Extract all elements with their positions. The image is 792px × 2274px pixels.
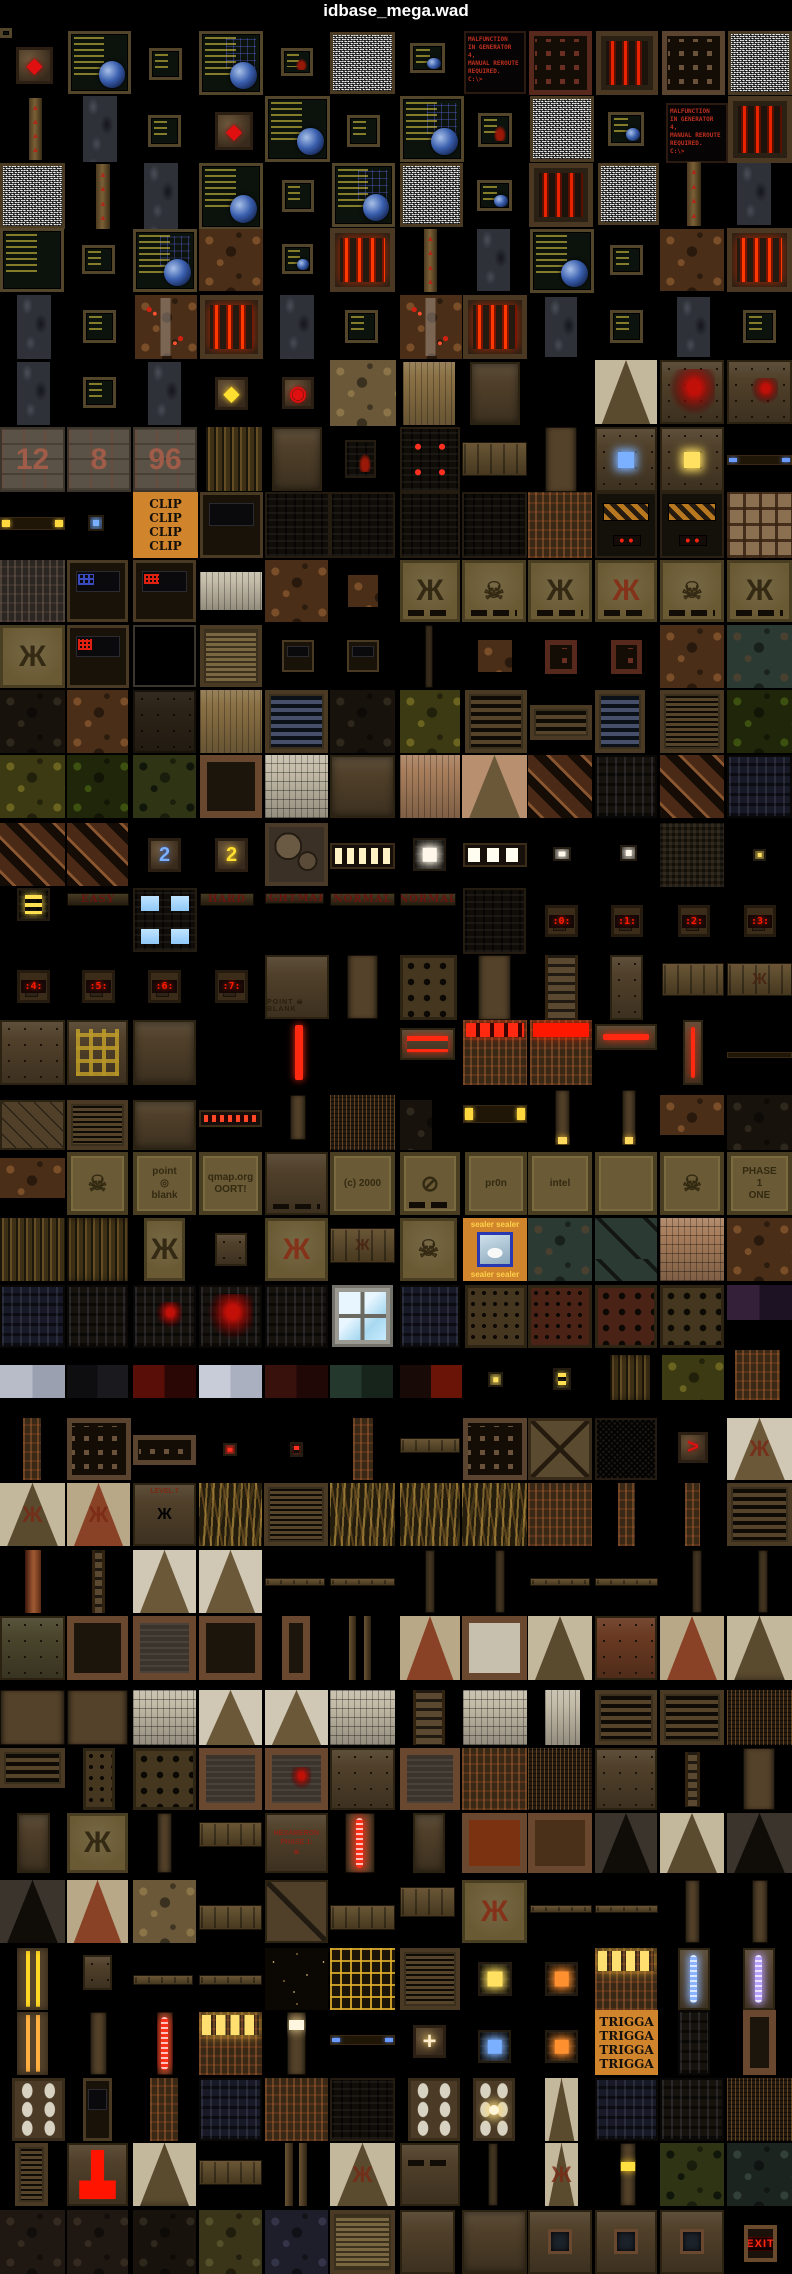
texture-tile: ▲▲▲▲ — [687, 162, 701, 226]
texture-tile — [477, 229, 510, 291]
texture-tile — [753, 849, 766, 861]
texture-tile — [330, 492, 395, 558]
texture-tile — [727, 2078, 792, 2141]
difficulty-normal: NORMAL — [400, 893, 456, 906]
texture-tile — [264, 1483, 328, 1546]
texture-tile: Ж — [727, 560, 792, 622]
texture-tile — [478, 113, 512, 147]
texture-tile — [135, 295, 197, 359]
texture-tile — [530, 705, 592, 740]
texture-tile — [463, 888, 526, 954]
texture-tile — [611, 640, 642, 674]
texture-tile — [199, 1748, 262, 1810]
texture-tile — [545, 640, 577, 674]
texture-tile: ⊘ — [400, 1152, 460, 1215]
texture-tile: Ж — [545, 2143, 578, 2206]
texture-tile: ▲▲▲▲ — [29, 98, 42, 160]
texture-tile — [347, 955, 378, 1019]
texture-tile — [596, 31, 658, 95]
texture-tile: :4: — [17, 970, 50, 1003]
texture-tile — [133, 690, 196, 753]
texture-tile — [67, 823, 128, 886]
texture-tile — [478, 640, 512, 672]
texture-tile — [470, 362, 520, 425]
texture-tile — [67, 1418, 131, 1480]
texture-tile — [0, 1616, 65, 1680]
texture-tile — [425, 1550, 435, 1613]
texture-tile — [413, 838, 446, 871]
texture-tile: ☠ — [462, 560, 526, 622]
texture-tile — [157, 1813, 172, 1873]
texture-tile — [400, 1438, 460, 1453]
texture-tile — [595, 1690, 657, 1745]
texture-tile — [199, 1905, 262, 1930]
texture-tile — [463, 1418, 527, 1480]
texture-tile — [400, 955, 457, 1020]
texture-tile — [133, 1100, 196, 1150]
texture-tile — [17, 1948, 48, 2010]
texture-tile — [265, 690, 328, 753]
texture-tile — [265, 1948, 328, 2010]
texture-tile — [478, 955, 511, 1020]
texture-tile — [727, 690, 792, 753]
texture-tile — [67, 1880, 128, 1943]
texture-tile — [345, 440, 376, 478]
texture-tile — [400, 1100, 432, 1150]
texture-tile — [622, 1090, 636, 1145]
texture-tile — [685, 1752, 700, 1807]
texture-tile — [282, 244, 313, 274]
tile-glyph-icon: Ж — [403, 563, 457, 619]
texture-tile — [0, 1690, 65, 1745]
texture-tile — [462, 1616, 527, 1680]
texture-tile — [330, 1095, 395, 1150]
texture-tile — [528, 492, 592, 558]
texture-tile: ▲▲▲▲ — [424, 229, 437, 292]
texture-tile: Ж — [595, 560, 657, 622]
texture-tile — [413, 1813, 445, 1873]
difficulty-nightmare: NIGHTMARE — [265, 893, 324, 904]
texture-tile — [265, 492, 330, 558]
texture-tile — [68, 31, 131, 94]
texture-tile — [400, 2210, 455, 2274]
texture-tile: 2 — [148, 838, 181, 872]
texture-tile — [348, 575, 378, 607]
texture-tile — [727, 1483, 792, 1546]
texture-tile: Ж — [330, 1228, 395, 1263]
texture-tile — [400, 1028, 455, 1060]
texture-tile — [199, 1550, 262, 1613]
texture-tile — [82, 245, 115, 274]
copyright-sign: (c) 2000 — [330, 1152, 395, 1215]
texture-tile — [0, 228, 64, 292]
texture-tile — [595, 1152, 657, 1215]
texture-tile: Ж — [67, 1483, 130, 1546]
texture-tile — [83, 1748, 115, 1810]
texture-tile: Ж — [265, 1218, 328, 1281]
texture-tile: ◆ — [215, 377, 248, 410]
texture-tile — [660, 1218, 724, 1281]
texture-tile — [199, 31, 263, 95]
texture-tile — [473, 2078, 515, 2141]
skull-sign: ☠ — [67, 1152, 128, 1215]
texture-tile — [148, 115, 181, 147]
texture-tile — [660, 1690, 724, 1745]
texture-tile — [199, 2160, 262, 2185]
texture-tile — [528, 1218, 592, 1281]
texture-tile — [265, 1748, 328, 1810]
texture-tile — [595, 1905, 658, 1913]
texture-tile — [206, 427, 262, 491]
texture-tile — [345, 1616, 375, 1680]
texture-tile — [287, 2012, 306, 2075]
texture-tile — [400, 690, 460, 753]
texture-tile — [199, 2210, 262, 2274]
texture-tile — [67, 1100, 128, 1150]
texture-tile — [545, 2078, 578, 2141]
texture-tile — [727, 1690, 792, 1745]
texture-tile — [752, 1880, 768, 1943]
texture-tile — [403, 362, 455, 425]
texture-tile — [17, 2012, 48, 2075]
texture-tile — [618, 1483, 635, 1546]
texture-tile — [83, 1955, 112, 1990]
texture-tile — [410, 43, 445, 73]
tile-glyph-icon: ◆ — [218, 380, 245, 407]
texture-tile — [17, 1813, 50, 1873]
texture-tile — [660, 492, 724, 558]
texture-tile — [345, 310, 378, 343]
phase-one-sign: PHASE1ONE — [727, 1152, 792, 1215]
texture-tile — [0, 1285, 65, 1348]
texture-tile — [735, 1350, 780, 1400]
texture-tile: ▲▲▲▲ — [96, 164, 110, 229]
texture-tile — [265, 1880, 328, 1943]
texture-tile — [595, 360, 657, 424]
texture-tile: Ж — [462, 1880, 527, 1943]
texture-tile — [660, 2078, 724, 2141]
texture-tile — [465, 1285, 527, 1348]
texture-tile — [282, 180, 314, 212]
texture-tile — [685, 1880, 700, 1943]
texture-tile — [400, 163, 463, 227]
texture-tile — [727, 1616, 792, 1680]
texture-tile — [727, 625, 792, 688]
texture-tile — [545, 1962, 578, 1996]
texture-tile — [150, 2078, 178, 2141]
texture-tile — [595, 1616, 657, 1680]
texture-tile — [478, 2030, 511, 2063]
texture-tile — [133, 229, 197, 292]
texture-tile: :2: — [678, 905, 710, 937]
texture-tile — [83, 310, 116, 343]
tile-glyph-icon: > — [681, 1435, 705, 1460]
texture-tile — [0, 1748, 65, 1788]
texture-tile — [660, 229, 724, 291]
texture-tile — [88, 515, 104, 531]
texture-tile — [463, 843, 527, 867]
tile-glyph-icon: ☠ — [465, 563, 523, 619]
texture-tile — [199, 1285, 262, 1348]
texture-tile — [295, 1025, 303, 1080]
tile-glyph-icon: ◉ — [285, 380, 311, 406]
tile-glyph-icon: Ж — [268, 1221, 325, 1278]
texture-tile — [148, 362, 181, 425]
texture-tile: :0: — [545, 905, 578, 937]
tile-glyph-icon: Ж — [0, 1483, 65, 1546]
texture-tile — [727, 360, 792, 424]
texture-tile: Ж — [67, 1813, 128, 1873]
texture-tile — [528, 1418, 592, 1480]
texture-tile — [660, 1095, 724, 1135]
texture-tile — [67, 755, 128, 818]
texture-tile — [199, 2078, 262, 2141]
texture-tile — [199, 1822, 262, 1847]
tile-glyph-icon: ⊘ — [421, 1171, 439, 1197]
texture-tile — [727, 755, 792, 818]
pr0n-sign: pr0n — [465, 1152, 527, 1215]
texture-tile — [620, 2143, 636, 2206]
texture-tile — [265, 755, 328, 818]
texture-tile — [265, 1365, 328, 1398]
texture-tile — [67, 1690, 128, 1745]
texture-tile — [727, 492, 792, 558]
tile-glyph-icon: Ж — [730, 563, 789, 619]
texture-tile — [530, 96, 594, 162]
texture-tile — [67, 1218, 128, 1281]
tile-glyph-icon: 2 — [151, 841, 178, 869]
texture-tile — [462, 1813, 527, 1873]
texture-tile — [0, 2210, 65, 2274]
texture-tile — [462, 492, 527, 558]
texture-tile — [678, 2010, 710, 2075]
texture-tile — [660, 2210, 724, 2274]
texture-tile: Ж — [330, 2143, 395, 2206]
numbered-wall-96: 96 — [133, 427, 197, 492]
texture-tile — [743, 1748, 775, 1810]
texture-tile — [555, 1090, 570, 1145]
texture-tile — [330, 2035, 395, 2045]
texture-tile — [400, 1887, 455, 1917]
texture-tile — [133, 1616, 196, 1680]
texture-tile: :1: — [611, 905, 643, 937]
texture-tile — [545, 427, 577, 492]
texture-tile — [12, 2078, 65, 2141]
texture-tile: Ж — [0, 1483, 65, 1546]
texture-tile — [462, 2210, 527, 2274]
texture-tile: Ж — [400, 560, 460, 622]
texture-tile — [199, 163, 263, 230]
texture-tile — [727, 1813, 792, 1873]
texture-tile — [608, 112, 644, 146]
texture-tile — [330, 690, 395, 753]
texture-tile — [347, 640, 379, 672]
tile-glyph-icon: Ж — [531, 563, 589, 619]
texture-tile — [463, 1105, 527, 1123]
texture-tile — [0, 1158, 65, 1198]
qmap-sign: qmap.orgOORT! — [199, 1152, 262, 1215]
texture-tile — [678, 1948, 710, 2010]
texture-tile: :5: — [82, 970, 115, 1003]
texture-tile — [0, 1020, 65, 1085]
numbered-wall-12: 12 — [0, 427, 65, 492]
texture-tile — [133, 2210, 196, 2274]
texture-tile — [67, 2210, 128, 2274]
texture-tile — [330, 1690, 395, 1745]
texture-tile — [595, 1418, 657, 1480]
texture-tile — [17, 362, 50, 425]
level7-panel: LEVEL 7Ж — [133, 1483, 196, 1546]
difficulty-hard: HARD — [200, 893, 254, 906]
texture-tile — [595, 492, 657, 558]
texture-tile — [463, 1690, 527, 1745]
texture-tile — [477, 180, 512, 211]
texture-tile — [595, 755, 657, 818]
texture-tile — [290, 1095, 306, 1140]
texture-tile — [0, 690, 65, 753]
texture-tile — [728, 96, 792, 163]
texture-tile — [265, 1285, 328, 1348]
texture-tile — [662, 31, 725, 95]
texture-tile — [595, 1218, 657, 1281]
intel-sign: intel — [528, 1152, 592, 1215]
exit-sign: EXIT — [744, 2225, 777, 2262]
trigga-tile: TRIGGATRIGGATRIGGATRIGGA — [595, 2010, 658, 2075]
texture-tile — [330, 1365, 393, 1398]
texture-tile — [660, 1813, 724, 1873]
texture-tile — [462, 755, 527, 818]
texture-tile — [488, 1372, 503, 1387]
texture-tile — [0, 1218, 65, 1281]
texture-tile — [660, 2143, 724, 2206]
texture-tile — [545, 297, 577, 357]
texture-tile — [280, 295, 314, 359]
texture-tile — [265, 2078, 328, 2141]
texture-tile — [425, 625, 433, 688]
texture-tile — [685, 1483, 700, 1546]
texture-tile — [157, 2012, 173, 2075]
texture-tile — [528, 1748, 592, 1810]
window-tile — [332, 1285, 393, 1347]
texture-tile — [347, 115, 380, 147]
texture-tile — [23, 1418, 41, 1480]
texture-tile — [330, 1948, 395, 2010]
texture-tile — [0, 1100, 65, 1150]
texture-tile — [488, 2143, 498, 2206]
page-title: idbase_mega.wad — [0, 1, 792, 21]
texture-tile — [67, 1285, 128, 1348]
texture-tile — [743, 310, 776, 343]
texture-tile — [727, 1052, 792, 1058]
texture-tile — [67, 690, 128, 753]
texture-tile — [215, 1233, 247, 1266]
texture-tile — [200, 492, 263, 558]
texture-tile — [677, 297, 710, 357]
texture-tile — [660, 755, 724, 818]
texture-tile — [133, 1550, 196, 1613]
texture-tile — [743, 2010, 776, 2075]
texture-tile — [595, 1285, 657, 1348]
texture-tile — [272, 427, 322, 491]
texture-tile — [528, 755, 592, 818]
texture-tile — [330, 755, 395, 818]
texture-tile — [265, 96, 330, 162]
texture-tile — [400, 1483, 460, 1546]
texture-tile — [133, 2143, 196, 2206]
texture-tile — [462, 1483, 527, 1546]
texture-tile — [265, 1578, 325, 1586]
texture-tile — [727, 1218, 792, 1281]
chevron-tile: > — [678, 1432, 708, 1463]
texture-tile — [330, 843, 395, 869]
tile-glyph-icon: Ж — [330, 2143, 395, 2206]
texture-tile — [727, 1095, 792, 1150]
texture-tile — [553, 1368, 571, 1390]
red-arrow-tile — [67, 2143, 128, 2206]
texture-tile — [345, 1813, 375, 1873]
difficulty-easy: EASY — [67, 893, 129, 906]
texture-tile — [400, 1748, 460, 1810]
texture-tile — [199, 2012, 262, 2075]
texture-tile — [463, 1020, 527, 1085]
texture-tile: ◉ — [282, 377, 314, 409]
texture-tile — [595, 1748, 657, 1810]
texture-tile: MALFUNCTIONIN GENERATOR 4,MANUAL REROUTE… — [666, 103, 728, 163]
tile-glyph-icon: Ж — [545, 2143, 578, 2206]
texture-tile — [83, 377, 116, 408]
texture-tile — [200, 690, 262, 753]
texture-tile — [662, 963, 724, 996]
texture-tile — [83, 96, 117, 162]
texture-tile — [400, 295, 462, 359]
texture-tile — [660, 823, 724, 887]
texture-tile — [200, 295, 263, 359]
texture-tile — [758, 1550, 768, 1613]
numbered-wall-8: 8 — [67, 427, 131, 492]
tile-glyph-icon: + — [416, 2028, 443, 2055]
texture-tile — [133, 560, 196, 622]
tile-glyph-icon: ☠ — [663, 563, 721, 619]
texture-tile — [400, 755, 460, 818]
texture-tile — [462, 442, 527, 476]
texture-tile — [620, 845, 637, 861]
texture-tile — [530, 1020, 592, 1085]
texture-tile — [83, 2078, 112, 2141]
tile-glyph-icon: Ж — [465, 1883, 524, 1940]
texture-tile — [222, 1020, 242, 1085]
texture-tile — [400, 492, 460, 558]
texture-tile — [530, 1578, 590, 1586]
texture-tile — [463, 295, 527, 359]
texture-tile — [133, 1748, 196, 1810]
texture-tile — [0, 1880, 65, 1943]
texture-tile — [528, 1285, 592, 1348]
texture-tile — [529, 31, 592, 95]
texture-tile — [330, 1578, 395, 1586]
texture-tile — [595, 1813, 657, 1873]
texture-tile — [595, 1948, 657, 2010]
texture-tile — [595, 1024, 657, 1050]
texture-tile — [265, 2210, 328, 2274]
texture-tile — [199, 1365, 262, 1398]
texture-tile — [727, 455, 792, 465]
texture-tile — [610, 1355, 650, 1400]
hexameron-sign: HEXAMERONPHASE 1:☠ — [265, 1813, 328, 1873]
tile-glyph-icon: ◆ — [218, 115, 250, 147]
texture-tile: ☠ — [660, 560, 724, 622]
texture-tile — [660, 625, 724, 688]
texture-tile — [478, 1962, 512, 1996]
